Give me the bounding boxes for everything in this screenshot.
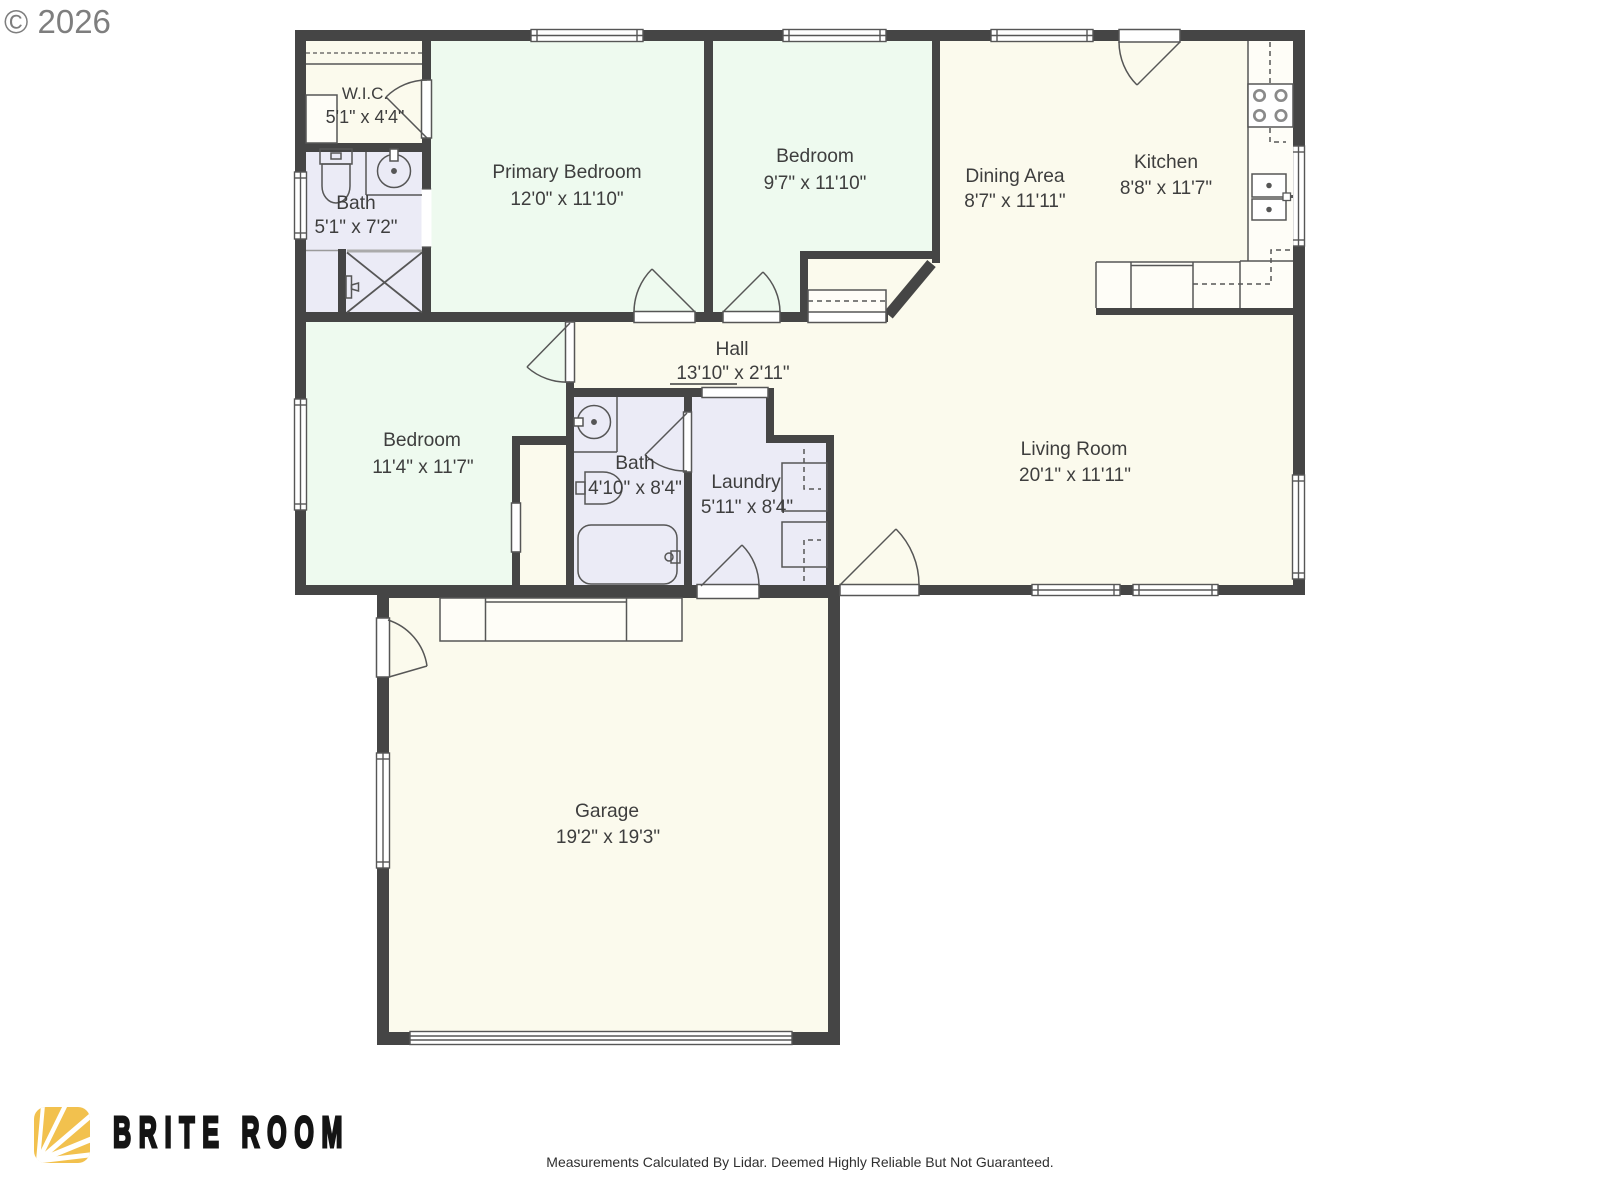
svg-text:5'11" x 8'4": 5'11" x 8'4" — [701, 497, 793, 518]
svg-text:12'0" x 11'10": 12'0" x 11'10" — [510, 189, 623, 210]
svg-text:19'2" x 19'3": 19'2" x 19'3" — [556, 827, 660, 848]
svg-text:9'7" x 11'10": 9'7" x 11'10" — [764, 173, 867, 194]
svg-text:5'1" x 4'4": 5'1" x 4'4" — [326, 107, 405, 127]
svg-text:Laundry: Laundry — [711, 472, 781, 493]
svg-text:5'1" x 7'2": 5'1" x 7'2" — [314, 217, 397, 238]
svg-text:Dining Area: Dining Area — [965, 166, 1065, 187]
svg-text:Bath: Bath — [336, 193, 375, 214]
svg-text:Hall: Hall — [715, 339, 748, 360]
svg-text:Primary Bedroom: Primary Bedroom — [492, 162, 641, 183]
svg-text:Bedroom: Bedroom — [383, 430, 461, 451]
svg-text:Living Room: Living Room — [1021, 439, 1128, 460]
svg-text:20'1" x 11'11": 20'1" x 11'11" — [1019, 465, 1131, 486]
svg-text:Kitchen: Kitchen — [1134, 152, 1198, 173]
svg-text:© 2026: © 2026 — [4, 3, 111, 40]
svg-text:Garage: Garage — [575, 801, 639, 822]
svg-text:BRITE ROOM: BRITE ROOM — [113, 1108, 350, 1157]
svg-text:W.I.C.: W.I.C. — [342, 84, 388, 103]
svg-text:Measurements Calculated By Lid: Measurements Calculated By Lidar. Deemed… — [546, 1154, 1053, 1170]
svg-text:Bedroom: Bedroom — [776, 146, 854, 167]
svg-text:8'7" x 11'11": 8'7" x 11'11" — [964, 191, 1065, 212]
svg-text:8'8" x 11'7": 8'8" x 11'7" — [1120, 178, 1212, 199]
svg-text:Bath: Bath — [615, 453, 654, 474]
svg-text:4'10" x 8'4": 4'10" x 8'4" — [588, 478, 682, 499]
svg-text:11'4" x 11'7": 11'4" x 11'7" — [372, 457, 473, 478]
svg-text:13'10" x 2'11": 13'10" x 2'11" — [676, 363, 789, 384]
